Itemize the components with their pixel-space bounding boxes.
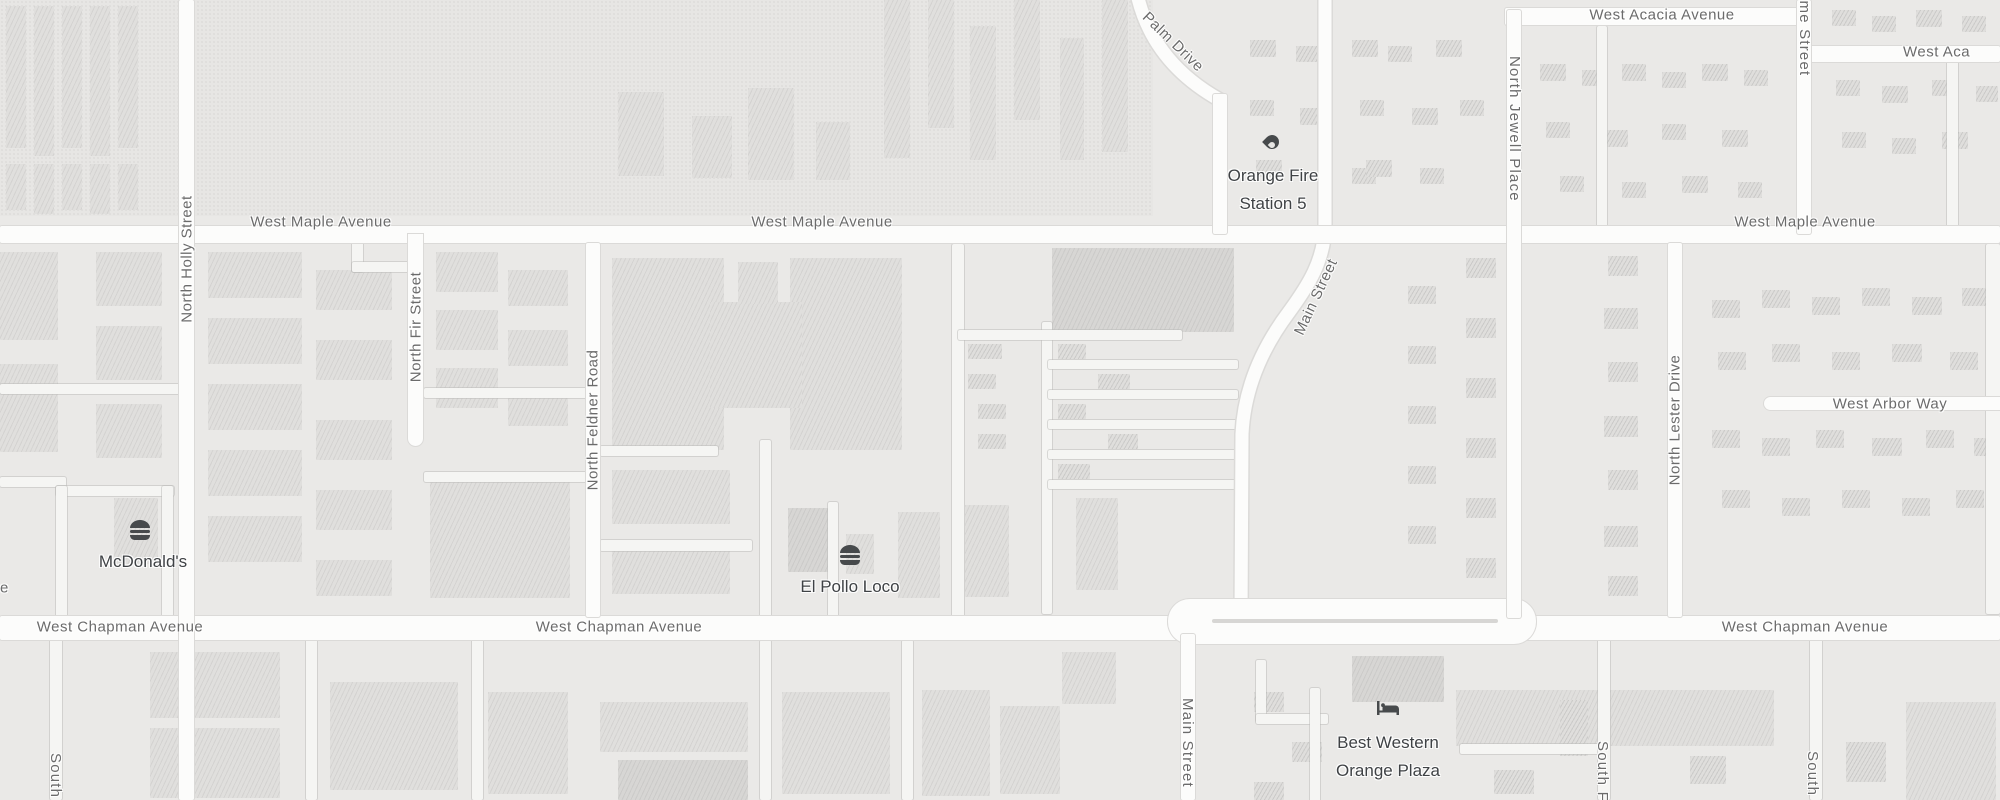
street-label-north-jewell-place: North Jewell Place [1506, 56, 1523, 202]
street-label-lime-street-clipped: ime Street [1796, 0, 1813, 76]
street-label-west-acacia-avenue: West Acacia Avenue [1589, 7, 1734, 24]
street-label-south-clipped-left: South [47, 753, 64, 798]
street-label-west-chapman-avenue-2: West Chapman Avenue [536, 619, 703, 636]
street-label-north-holly-street: North Holly Street [179, 195, 196, 322]
street-label-south-f-clipped: South F [1594, 741, 1611, 800]
street-label-north-feldner-road: North Feldner Road [585, 350, 602, 491]
street-label-west-arbor-way: West Arbor Way [1833, 396, 1948, 413]
street-label-west-maple-avenue-3: West Maple Avenue [1734, 214, 1875, 231]
curved-roads [0, 0, 2000, 800]
road [1213, 94, 1227, 234]
street-label-west-maple-avenue-2: West Maple Avenue [751, 214, 892, 231]
street-label-north-lester-drive: North Lester Drive [1667, 355, 1684, 486]
road [179, 0, 194, 800]
street-label-west-chapman-avenue-3: West Chapman Avenue [1722, 619, 1889, 636]
road [0, 616, 2000, 640]
street-label-west-chapman-avenue-1: West Chapman Avenue [37, 619, 204, 636]
street-label-main-street-lower: Main Street [1179, 698, 1196, 788]
street-label-north-fir-street: North Fir Street [408, 272, 425, 383]
road-median [1212, 619, 1498, 623]
map-screenshot: { "map_type": "grayscale-road-map", "str… [0, 0, 2000, 800]
street-label-west-maple-avenue-1: West Maple Avenue [250, 214, 391, 231]
street-label-west-acacia-clipped: West Aca [1903, 44, 1970, 61]
map-canvas[interactable]: West Acacia Avenue West Aca ime Street N… [0, 0, 2000, 800]
street-label-south-clipped-right: South [1804, 751, 1821, 796]
street-label-fragment-left-edge: e [0, 580, 9, 597]
